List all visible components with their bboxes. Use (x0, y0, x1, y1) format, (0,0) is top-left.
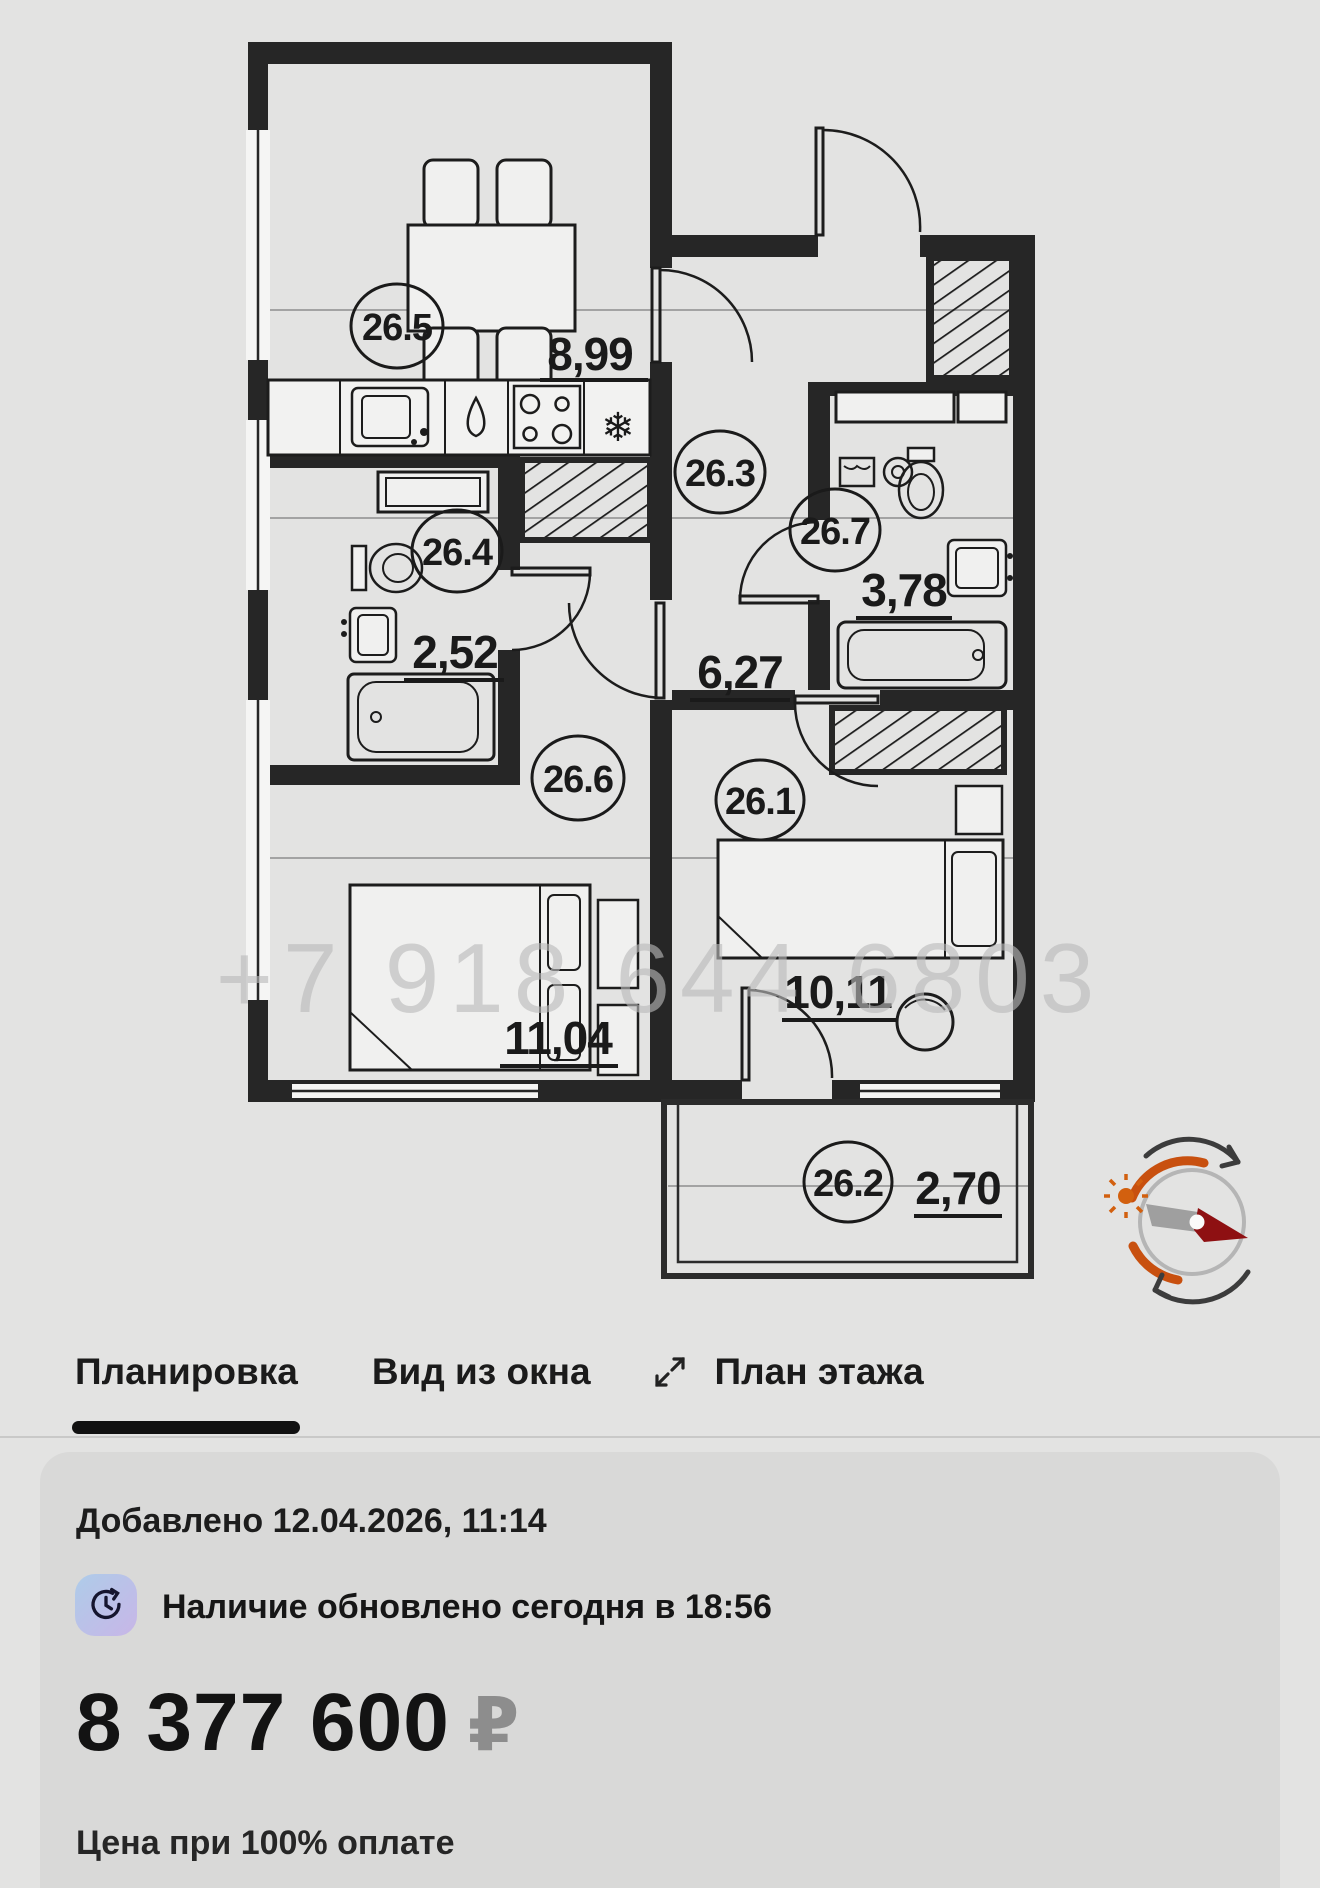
room-id-26-4: 26.4 (422, 532, 493, 574)
floor-plan-viewer[interactable]: ❄ (0, 0, 1320, 1330)
bedroom1-door-leaf (656, 603, 664, 698)
room-area-26-3: 6,27 (697, 646, 783, 698)
kitchen-door-leaf (652, 268, 660, 362)
room-area-26-4: 2,52 (412, 626, 498, 678)
fridge-snowflake-icon: ❄ (601, 406, 635, 450)
kitchen-counter (268, 380, 650, 455)
room-id-26-7: 26.7 (800, 511, 870, 553)
tab-window-view[interactable]: Вид из окна (372, 1342, 591, 1402)
bathroom1-fixtures (341, 472, 494, 760)
chair-icon (497, 160, 551, 228)
utility-shaft (930, 257, 1013, 379)
price-row: 8 377 600 ₽ (76, 1676, 519, 1770)
bedroom2-door-leaf (795, 696, 878, 703)
tab-layout[interactable]: Планировка (75, 1342, 298, 1402)
room-area-26-2: 2,70 (915, 1162, 1001, 1214)
room-id-26-6: 26.6 (543, 759, 613, 801)
tabs-divider (0, 1436, 1320, 1438)
date-added-text: Добавлено 12.04.2026, 11:14 (76, 1502, 547, 1541)
room-area-26-5: 8,99 (547, 328, 633, 380)
nightstand-icon (956, 786, 1002, 834)
dining-table-icon (408, 225, 575, 331)
washing-machine-icon (840, 458, 874, 486)
bathroom1-door-leaf (512, 568, 590, 575)
sun-arc (1133, 1246, 1178, 1280)
sun-arc (1132, 1161, 1204, 1198)
bathroom2-door-leaf (740, 596, 818, 603)
room-area-26-7: 3,78 (861, 564, 947, 616)
compass-widget[interactable] (1104, 1139, 1248, 1302)
room-id-26-5: 26.5 (362, 307, 433, 349)
wardrobe-hatch-2 (832, 708, 1004, 772)
active-tab-indicator (72, 1421, 300, 1434)
sink-icon (350, 608, 396, 662)
room-id-26-2: 26.2 (813, 1163, 883, 1205)
listing-screen: ❄ (0, 0, 1320, 1888)
listing-info-card: Добавлено 12.04.2026, 11:14 Наличие обно… (40, 1452, 1280, 1888)
expand-icon[interactable] (647, 1349, 693, 1395)
bathtub-icon (838, 622, 1006, 688)
ruble-sign: ₽ (468, 1682, 520, 1768)
room-id-26-1: 26.1 (725, 781, 796, 823)
kitchen-furniture: ❄ (268, 160, 650, 455)
availability-text: Наличие обновлено сегодня в 18:56 (162, 1588, 772, 1627)
watermark-phone: +7 918 644 6803 (216, 923, 1104, 1033)
compass-needle-gray (1146, 1204, 1198, 1232)
entrance-door-leaf (816, 128, 823, 235)
price-value: 8 377 600 (76, 1676, 450, 1770)
sun-icon (1104, 1174, 1148, 1218)
shelf-icon (958, 392, 1006, 422)
shelf-icon (836, 392, 954, 422)
availability-clock-icon (75, 1574, 137, 1636)
room-id-26-3: 26.3 (685, 453, 755, 495)
toilet-icon (352, 546, 366, 590)
price-note: Цена при 100% оплате (76, 1824, 454, 1863)
view-tabs: Планировка Вид из окна План этажа (75, 1342, 924, 1402)
wardrobe-hatch-1 (522, 460, 650, 540)
tab-floor-plan[interactable]: План этажа (715, 1342, 924, 1402)
chair-icon (424, 160, 478, 228)
toilet-icon (908, 448, 934, 461)
